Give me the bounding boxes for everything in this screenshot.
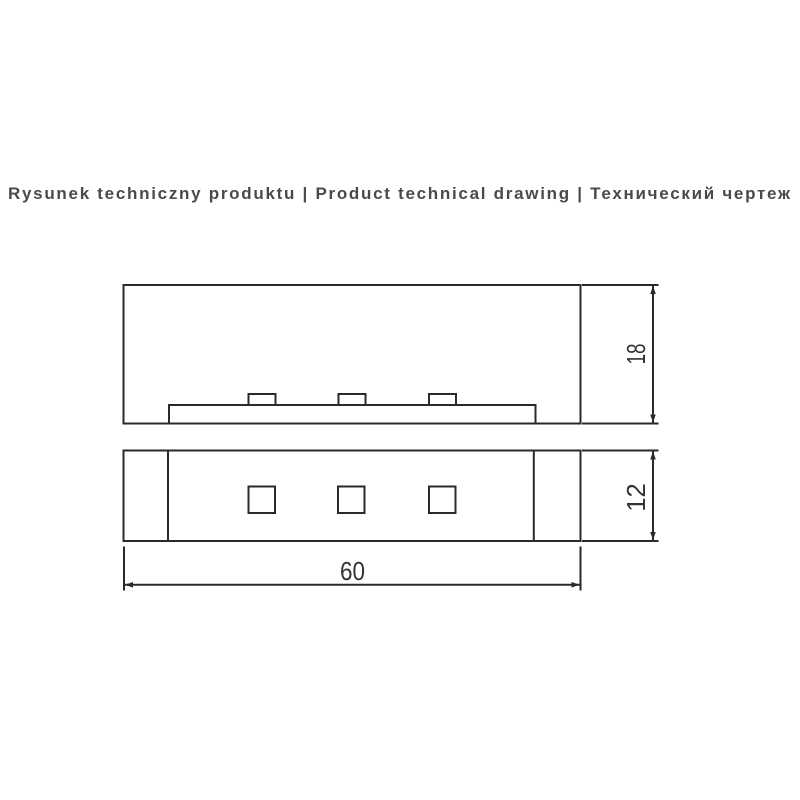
svg-text:Rysunek techniczny produktu |: Rysunek techniczny produktu | Product te… — [8, 184, 791, 203]
svg-text:60: 60 — [340, 556, 365, 586]
svg-text:18: 18 — [621, 344, 651, 365]
svg-text:12: 12 — [621, 483, 651, 512]
